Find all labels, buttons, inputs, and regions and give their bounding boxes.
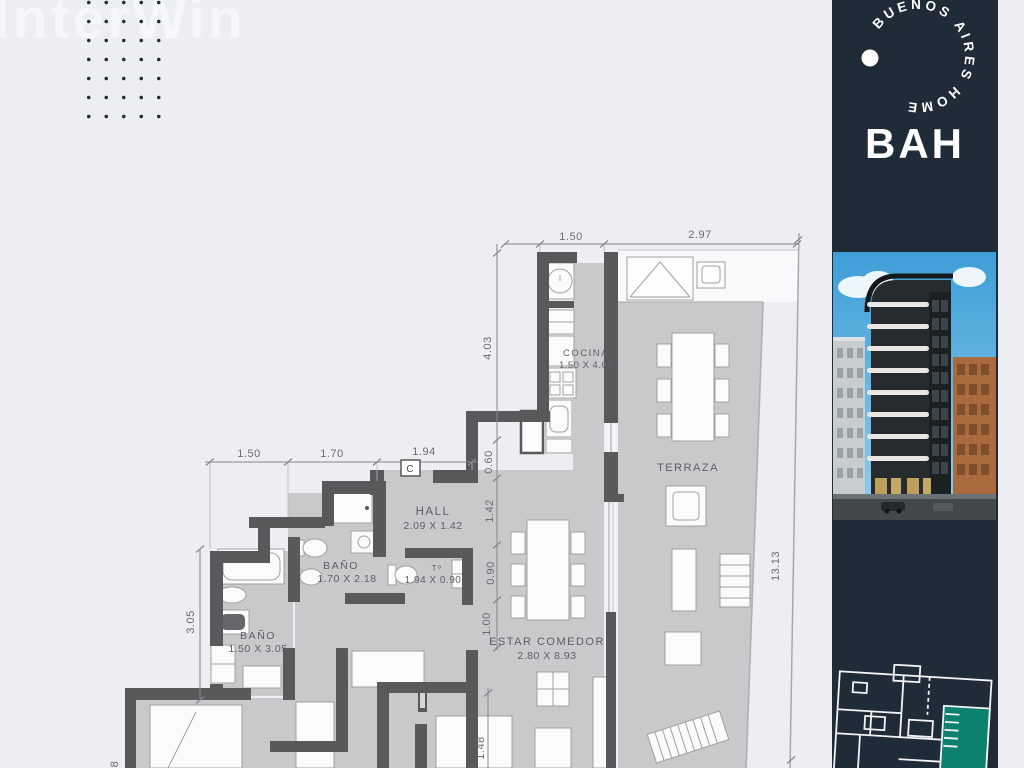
section-marker-label: C [406, 464, 413, 475]
flyer-page: { "watermark_text": "InterWin", "colors"… [0, 0, 1024, 768]
dim-mid-2: 1.70 [320, 448, 343, 460]
section-marker: C [401, 460, 420, 476]
sliding-glass-doors [606, 423, 616, 612]
logo-dot [862, 50, 879, 67]
logo-acronym: BAH [865, 120, 965, 167]
room-cocina-dims: 1.50 X 4.03 [559, 360, 613, 371]
brand-sidebar: BUENOS AIRES HOME BAH [832, 0, 998, 768]
dim-left-403: 4.03 [482, 336, 494, 359]
dim-far-right-1313: 13.13 [770, 551, 782, 581]
room-banio-sup-dims: 1.70 X 2.18 [317, 573, 376, 585]
dining-table-indoor [511, 520, 585, 620]
building-photo [833, 252, 996, 520]
dim-mid-1: 1.50 [237, 448, 260, 460]
grill-fixture [627, 257, 693, 300]
dim-mid-3: 1.94 [412, 446, 435, 458]
dim-right-090: 0.90 [485, 561, 497, 584]
brand-logo: BUENOS AIRES HOME BAH [832, 0, 998, 200]
dim-left-305: 3.05 [185, 610, 197, 633]
room-banio-inf-dims: 1.50 X 3.05 [228, 643, 287, 655]
main-building [867, 276, 953, 502]
dim-right-060: 0.60 [483, 450, 495, 473]
dim-partial-bottom: 8 [109, 761, 121, 768]
dim-right-142: 1.42 [484, 499, 496, 522]
room-estar: ESTAR COMEDOR [489, 636, 605, 648]
logo-circle-text: BUENOS AIRES HOME [870, 0, 978, 115]
dim-right-100: 1.00 [481, 612, 493, 635]
dim-top-1: 1.50 [559, 231, 582, 243]
dim-right-148: 1.48 [475, 736, 487, 759]
room-estar-dims: 2.80 X 8.93 [517, 650, 576, 662]
floorplan-thumbnail [832, 664, 998, 768]
neighbor-building-right [953, 357, 996, 502]
shower-box [330, 493, 372, 523]
dining-table-terraza [657, 333, 729, 441]
sink-fixture-terraza [697, 262, 725, 288]
street [833, 494, 996, 520]
room-hall: HALL [416, 506, 451, 518]
room-banio-inf: BAÑO [240, 629, 276, 642]
room-terraza: TERRAZA [657, 462, 719, 474]
room-toilette-dims: 1.94 X 0.90 [405, 575, 462, 586]
room-hall-dims: 2.09 X 1.42 [403, 520, 462, 532]
svg-text:BUENOS AIRES HOME: BUENOS AIRES HOME [870, 0, 978, 115]
dim-top-2: 2.97 [688, 229, 711, 241]
neighbor-building-left [833, 337, 865, 502]
room-banio-sup: BAÑO [323, 559, 359, 572]
floor-plan: C 1.50 2.97 1.50 1.70 1.94 4.03 3.05 0.6… [0, 0, 830, 768]
room-toilette: Tº [432, 564, 443, 573]
room-cocina: COCINA [563, 348, 609, 359]
